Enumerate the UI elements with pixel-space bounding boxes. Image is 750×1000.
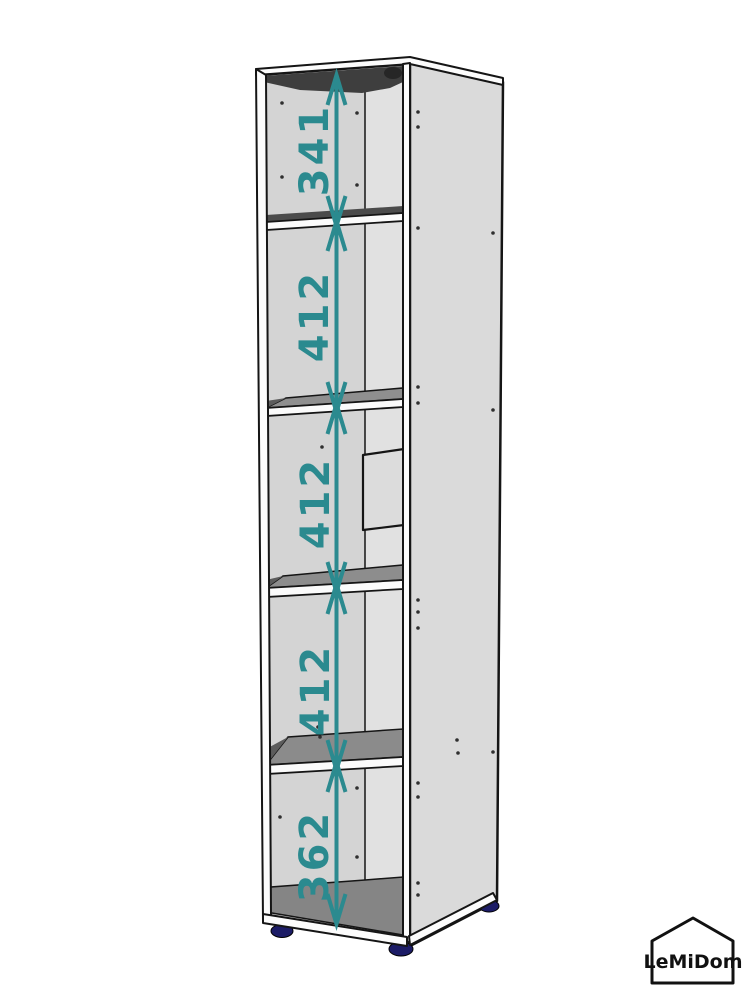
- dimension-label-5: 362: [292, 810, 338, 903]
- brand-logo: LeMiDom: [643, 918, 742, 983]
- dimension-label-2: 412: [292, 270, 338, 363]
- right-side-panel: [410, 62, 503, 946]
- dimension-label-1: 341: [292, 104, 338, 197]
- dimension-label-4: 412: [293, 644, 339, 737]
- back-wall-panel-detail: [363, 449, 404, 530]
- right-panel-front-edge: [403, 63, 410, 944]
- shelving-unit-diagram: 341 412 412 412 362: [0, 0, 750, 1000]
- logo-text: LeMiDom: [643, 951, 742, 973]
- cable-hole: [384, 67, 402, 79]
- diagram-canvas: 341 412 412 412 362: [0, 0, 750, 1000]
- dimension-label-3: 412: [293, 457, 339, 550]
